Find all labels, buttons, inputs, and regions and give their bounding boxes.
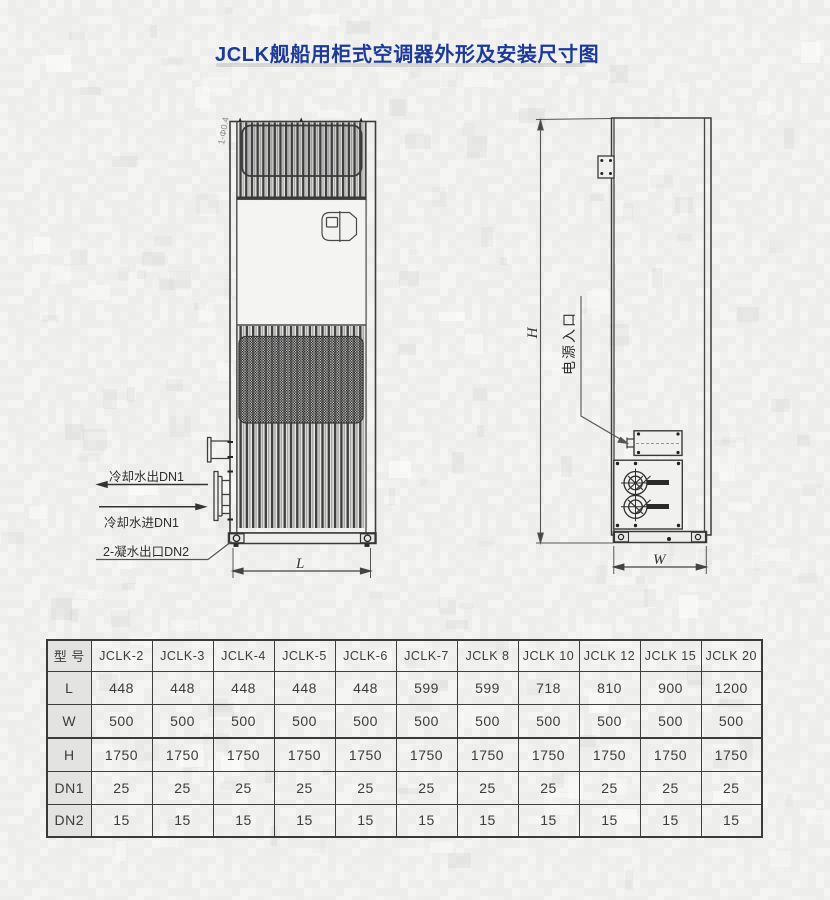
svg-text:W: W: [653, 552, 667, 568]
svg-text:H: H: [525, 326, 541, 339]
svg-text:1-Φ0.4: 1-Φ0.4: [216, 116, 231, 145]
svg-text:电源入口: 电源入口: [561, 311, 577, 375]
svg-text:L: L: [295, 556, 304, 572]
